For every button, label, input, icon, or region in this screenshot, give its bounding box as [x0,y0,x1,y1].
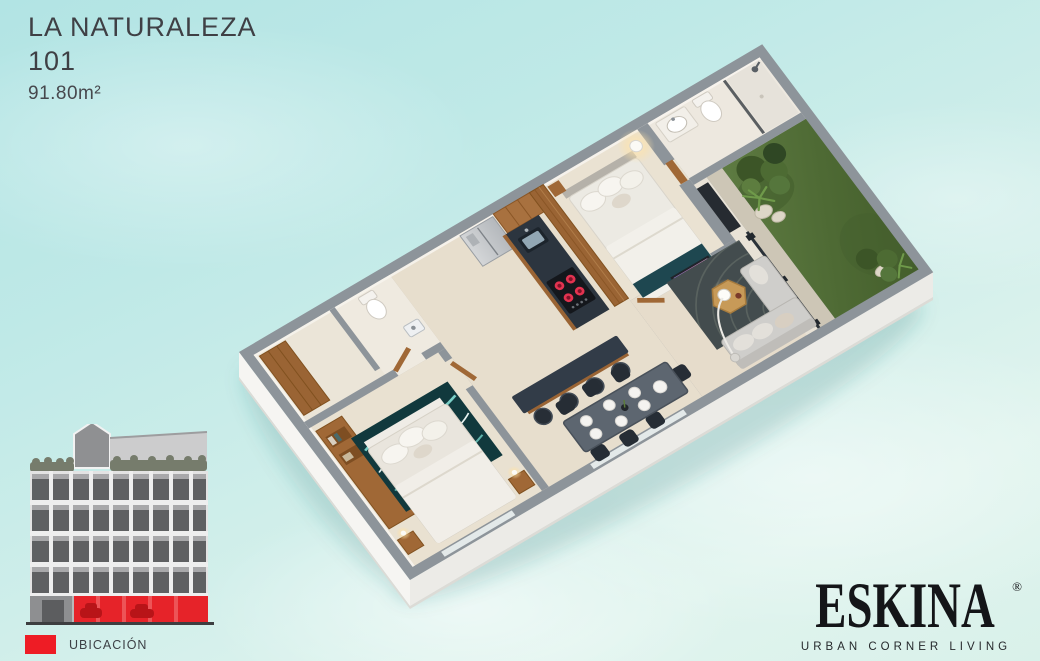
legend-red-swatch [25,635,56,654]
brand-block: ESKINA® URBAN CORNER LIVING [790,578,1022,653]
window-grid [30,471,208,597]
registered-mark: ® [1012,580,1022,593]
building-base [26,622,214,625]
brand-tagline: URBAN CORNER LIVING [790,641,1022,653]
legend: UBICACIÓN [25,635,147,654]
gable-tower [74,424,110,468]
poster-canvas: LA NATURALEZA 101 91.80m² [0,0,1040,661]
brand-wordmark: ESKINA [815,573,994,638]
building-elevation-wrap [22,424,232,634]
building-elevation [22,424,222,629]
location-highlight [74,596,208,622]
legend-label: UBICACIÓN [69,638,147,652]
